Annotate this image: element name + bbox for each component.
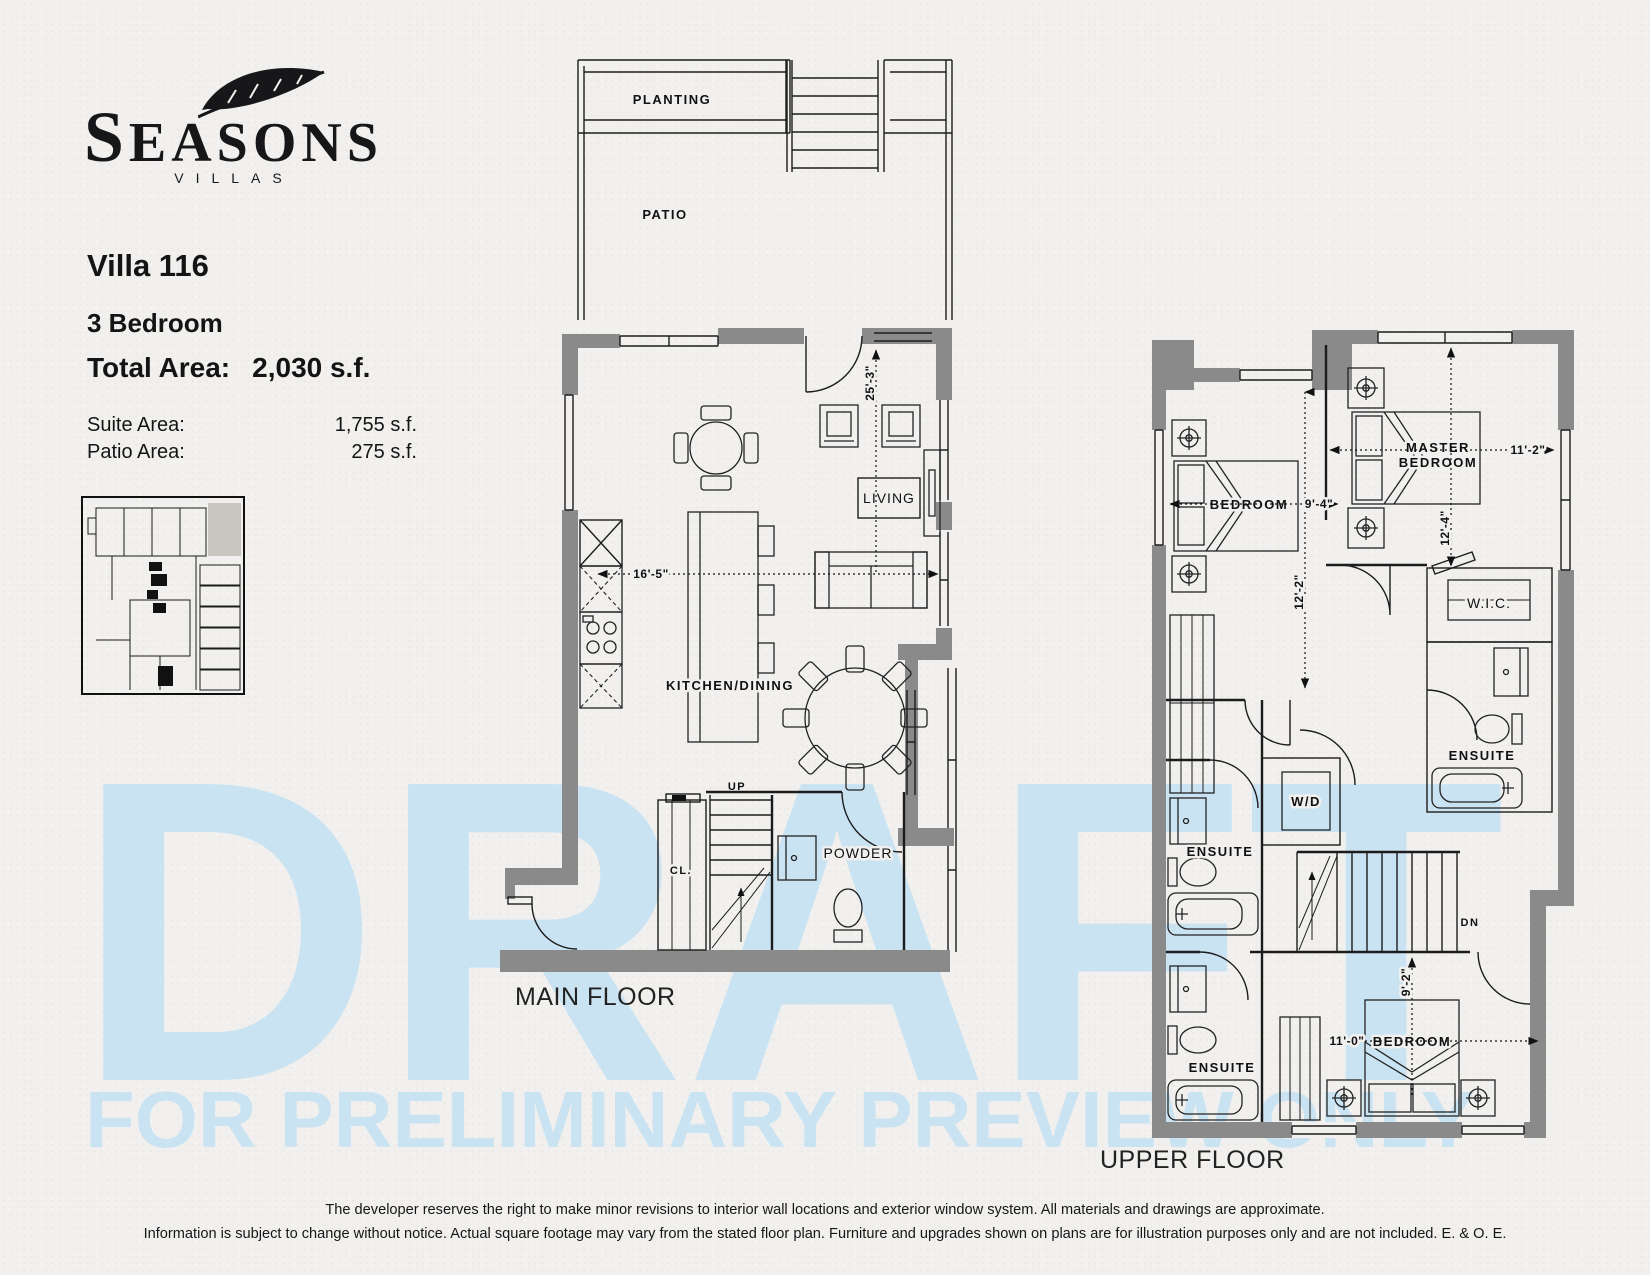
dim-9-2: 9'-2" bbox=[1399, 968, 1413, 996]
powder-label: POWDER bbox=[824, 845, 893, 861]
total-area-label: Total Area: bbox=[87, 352, 230, 384]
dim-11-0: 11'-0" bbox=[1330, 1034, 1365, 1048]
range-icon bbox=[580, 612, 622, 664]
main-floor-plan: PLANTING PATIO bbox=[500, 60, 956, 972]
master-bedroom-label-2: BEDROOM bbox=[1399, 455, 1477, 470]
kitchen-dining-label: KITCHEN/DINING bbox=[666, 678, 794, 693]
middle-ensuite-label: ENSUITE bbox=[1187, 844, 1254, 859]
middle-ensuite bbox=[1168, 798, 1258, 935]
main-floor-dimensions: 25'-3" 16'-5" bbox=[598, 350, 938, 581]
upper-floor-plan: BEDROOM MASTER BEDROOM W.I.C. bbox=[1152, 330, 1574, 1138]
living-label: LIVING bbox=[863, 490, 915, 506]
dim-12-4: 12'-4" bbox=[1438, 510, 1452, 546]
middle-ensuite-toilet bbox=[1180, 858, 1216, 886]
main-floor-title: MAIN FLOOR bbox=[515, 983, 676, 1012]
area-table: Suite Area: 1,755 s.f. Patio Area: 275 s… bbox=[87, 412, 417, 466]
bedroom-bottom bbox=[1280, 1000, 1495, 1120]
dim-9-4: 9'-4" bbox=[1305, 497, 1333, 511]
powder-toilet bbox=[834, 889, 862, 927]
patio-enclosure bbox=[578, 60, 956, 952]
suite-area-row: Suite Area: 1,755 s.f. bbox=[87, 412, 417, 439]
master-ensuite-label: ENSUITE bbox=[1449, 748, 1516, 763]
bedroom-left bbox=[1170, 420, 1298, 793]
bottom-ensuite-toilet bbox=[1180, 1027, 1216, 1053]
master-ensuite-toilet bbox=[1475, 715, 1509, 743]
key-plan-highlighted-unit bbox=[208, 503, 241, 556]
entry-door bbox=[508, 897, 577, 949]
total-area: Total Area: 2,030 s.f. bbox=[87, 352, 370, 384]
dim-25-3: 25'-3" bbox=[863, 365, 877, 401]
upper-floor-title: UPPER FLOOR bbox=[1100, 1146, 1285, 1175]
kitchen-cabinets bbox=[580, 520, 622, 708]
suite-area-label: Suite Area: bbox=[87, 412, 185, 439]
brand-tagline: VILLAS bbox=[84, 170, 384, 186]
wic-label: W.I.C. bbox=[1467, 595, 1511, 611]
key-plan bbox=[82, 497, 244, 694]
villa-type: 3 Bedroom bbox=[87, 308, 223, 339]
dim-16-5: 16'-5" bbox=[633, 567, 669, 581]
villa-title: Villa 116 bbox=[87, 248, 209, 284]
disclaimer-line-2: Information is subject to change without… bbox=[135, 1226, 1515, 1242]
master-ensuite-sink bbox=[1494, 648, 1528, 696]
upper-stairs bbox=[1297, 852, 1460, 952]
patio-door bbox=[806, 336, 862, 392]
closet-label: CL. bbox=[670, 865, 692, 877]
wd-label: W/D bbox=[1291, 794, 1321, 809]
brand-name: SEASONS bbox=[84, 96, 404, 179]
floorplan-page: { "brand": {"name": "SEASONS", "tagline"… bbox=[0, 0, 1650, 1275]
dim-11-2: 11'-2" bbox=[1511, 443, 1546, 457]
patio-label: PATIO bbox=[642, 207, 687, 222]
master-ensuite bbox=[1427, 642, 1552, 812]
disclaimer-line-1: The developer reserves the right to make… bbox=[135, 1202, 1515, 1218]
kitchen-island bbox=[688, 512, 774, 742]
planting-label: PLANTING bbox=[633, 92, 711, 107]
total-area-value: 2,030 s.f. bbox=[252, 352, 370, 384]
dim-12-2: 12'-2" bbox=[1292, 574, 1306, 610]
master-bedroom-label-1: MASTER bbox=[1406, 440, 1470, 455]
breakfast-table bbox=[674, 406, 758, 490]
bottom-ensuite-label: ENSUITE bbox=[1189, 1060, 1256, 1075]
patio-area-label: Patio Area: bbox=[87, 439, 185, 466]
sofa bbox=[815, 552, 927, 608]
living-armchairs bbox=[820, 405, 920, 447]
floor-plan-drawing: PLANTING PATIO bbox=[0, 0, 1650, 1275]
powder-door bbox=[842, 792, 902, 852]
dn-label: DN bbox=[1461, 917, 1480, 929]
suite-area-value: 1,755 s.f. bbox=[335, 412, 417, 439]
bottom-ensuite bbox=[1168, 966, 1258, 1120]
key-plan-core-cells bbox=[147, 562, 173, 686]
patio-area-value: 275 s.f. bbox=[351, 439, 417, 466]
patio-area-row: Patio Area: 275 s.f. bbox=[87, 439, 417, 466]
